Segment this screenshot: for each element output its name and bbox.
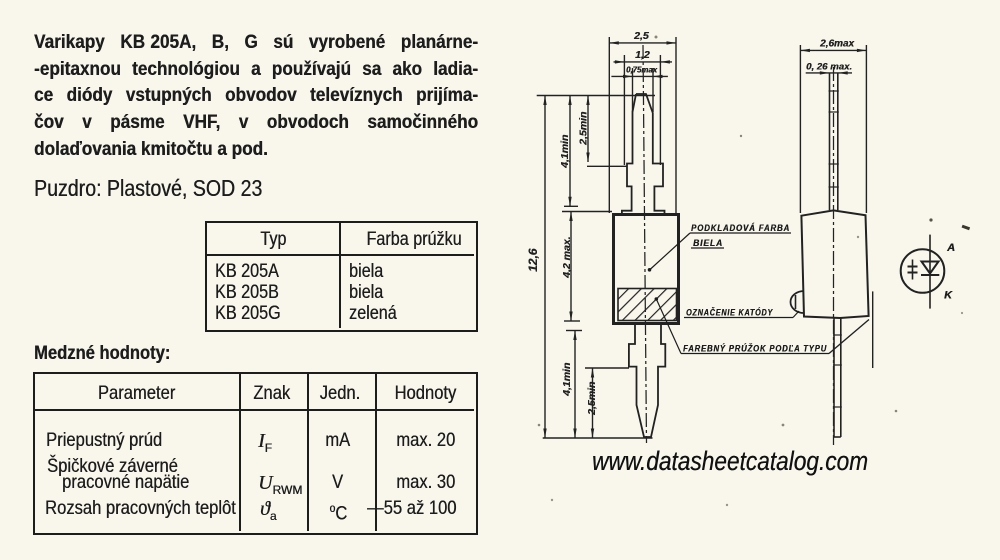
svg-text:12,6: 12,6 [526, 248, 540, 272]
svg-text:OZNAČENIE KATÓDY: OZNAČENIE KATÓDY [686, 307, 774, 319]
svg-text:FAREBNÝ PRÚŽOK PODĽA TYPU: FAREBNÝ PRÚŽOK PODĽA TYPU [683, 343, 827, 355]
svg-text:0, 26 max.: 0, 26 max. [806, 62, 852, 73]
svg-text:A: A [946, 242, 955, 254]
svg-text:BIELA: BIELA [693, 238, 723, 249]
svg-text:0,75max: 0,75max [626, 65, 658, 75]
svg-text:4,2 max.: 4,2 max. [561, 236, 573, 279]
svg-text:2,5min: 2,5min [578, 112, 590, 146]
svg-text:2,6max: 2,6max [819, 38, 855, 50]
svg-text:4,1min: 4,1min [561, 363, 573, 397]
svg-text:2,5min: 2,5min [586, 382, 598, 416]
svg-text:www.datasheetcatalog.com: www.datasheetcatalog.com [592, 446, 868, 476]
svg-text:4,1min: 4,1min [559, 135, 571, 169]
svg-text:2,5: 2,5 [633, 30, 649, 42]
svg-text:PODKLADOVÁ FARBA: PODKLADOVÁ FARBA [691, 223, 790, 234]
svg-text:K: K [944, 290, 953, 302]
svg-text:1,2: 1,2 [635, 49, 650, 61]
